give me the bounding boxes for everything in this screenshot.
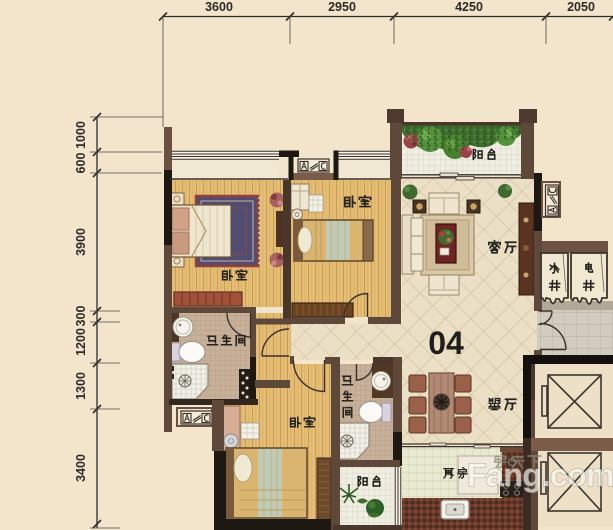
svg-text:4250: 4250 — [455, 0, 483, 14]
svg-text:1200: 1200 — [74, 328, 88, 356]
svg-text:600: 600 — [74, 153, 88, 174]
svg-text:1000: 1000 — [74, 121, 88, 149]
svg-text:1300: 1300 — [74, 372, 88, 400]
svg-text:2950: 2950 — [328, 0, 356, 14]
svg-text:3400: 3400 — [74, 454, 88, 482]
svg-text:Fang.com: Fang.com — [467, 457, 613, 493]
svg-text:300: 300 — [74, 306, 88, 327]
svg-text:3600: 3600 — [205, 0, 233, 14]
svg-text:04: 04 — [428, 325, 464, 361]
svg-text:3900: 3900 — [74, 228, 88, 256]
svg-text:2050: 2050 — [567, 0, 595, 14]
